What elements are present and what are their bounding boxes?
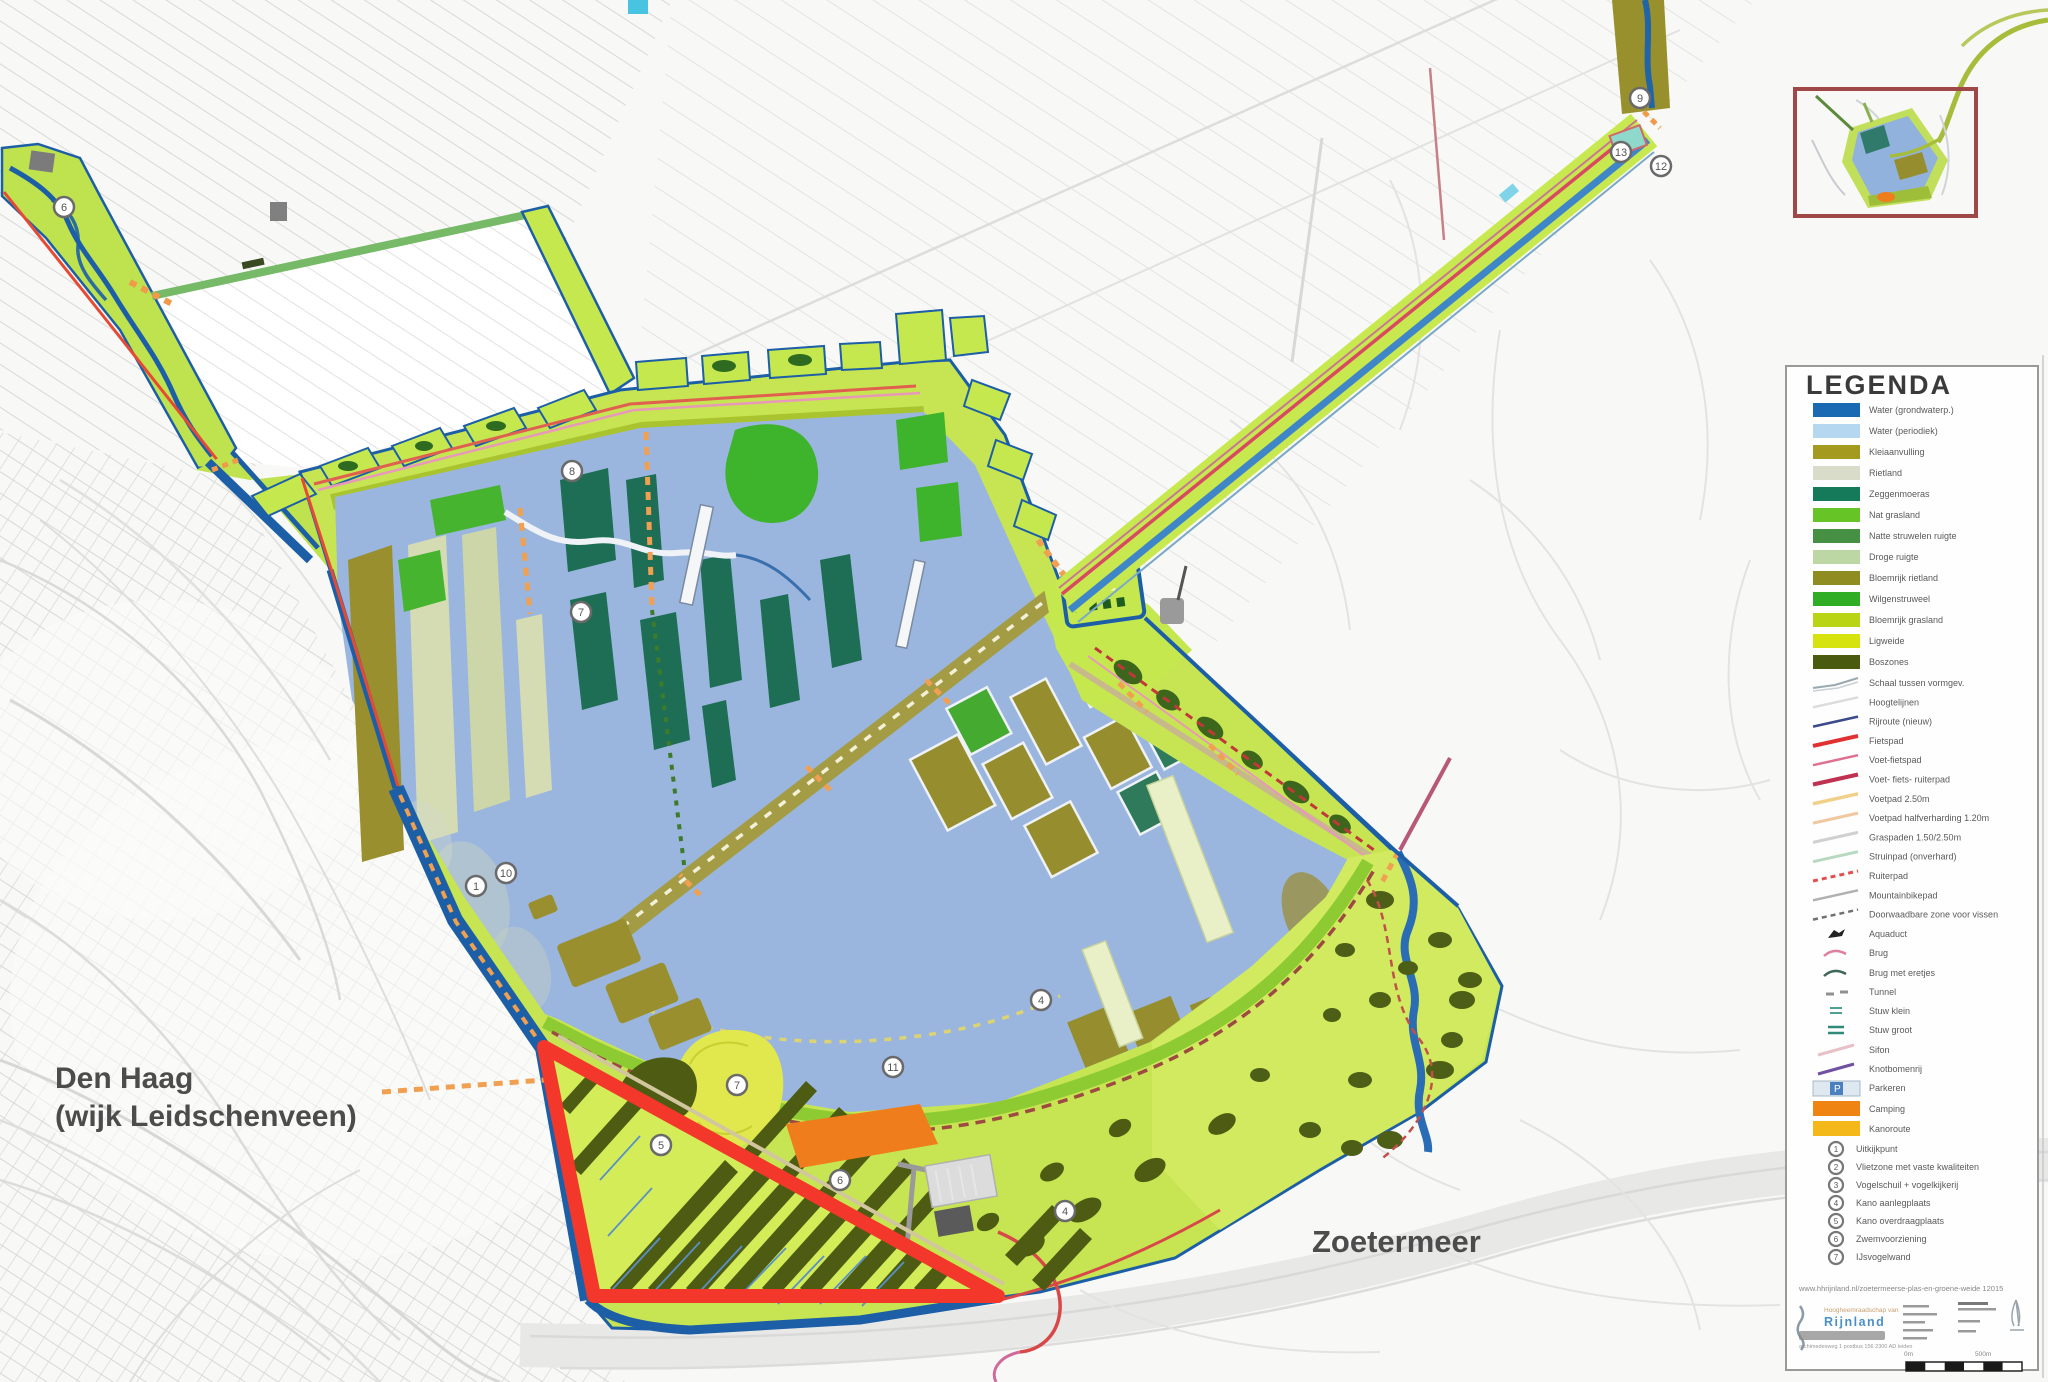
svg-text:5: 5 — [658, 1140, 664, 1152]
svg-text:Voetpad 2.50m: Voetpad 2.50m — [1869, 794, 1930, 804]
svg-text:11: 11 — [887, 1062, 898, 1074]
svg-text:Rijroute (nieuw): Rijroute (nieuw) — [1869, 717, 1932, 727]
svg-text:Parkeren: Parkeren — [1869, 1083, 1906, 1093]
svg-text:12: 12 — [1655, 161, 1667, 173]
svg-text:4: 4 — [1834, 1199, 1839, 1208]
svg-text:Sifon: Sifon — [1869, 1045, 1890, 1055]
svg-text:Zwemvoorziening: Zwemvoorziening — [1856, 1234, 1927, 1244]
svg-text:0m: 0m — [1904, 1351, 1913, 1358]
svg-text:Rietland: Rietland — [1869, 468, 1902, 478]
svg-text:Vogelschuil + vogelkijkerij: Vogelschuil + vogelkijkerij — [1856, 1180, 1958, 1190]
svg-text:Voetpad halfverharding 1.20m: Voetpad halfverharding 1.20m — [1869, 813, 1989, 823]
svg-text:Fietspad: Fietspad — [1869, 736, 1904, 746]
svg-text:Ligweide: Ligweide — [1869, 636, 1905, 646]
svg-text:Camping: Camping — [1869, 1104, 1905, 1114]
svg-text:Brug met eretjes: Brug met eretjes — [1869, 968, 1936, 978]
svg-text:Kanoroute: Kanoroute — [1869, 1124, 1911, 1134]
svg-text:Struinpad (onverhard): Struinpad (onverhard) — [1869, 852, 1957, 862]
svg-text:Kleiaanvulling: Kleiaanvulling — [1869, 447, 1925, 457]
svg-text:Kano aanlegplaats: Kano aanlegplaats — [1856, 1198, 1931, 1208]
svg-text:7: 7 — [578, 607, 584, 619]
svg-text:6: 6 — [837, 1175, 843, 1187]
svg-text:Doorwaadbare zone voor vissen: Doorwaadbare zone voor vissen — [1869, 910, 1998, 920]
svg-text:9: 9 — [1637, 93, 1643, 105]
svg-text:6: 6 — [1834, 1235, 1839, 1244]
svg-text:Zeggenmoeras: Zeggenmoeras — [1869, 489, 1930, 499]
svg-text:2: 2 — [1834, 1163, 1839, 1172]
svg-text:P: P — [1834, 1084, 1841, 1095]
svg-text:Knotbomenrij: Knotbomenrij — [1869, 1064, 1922, 1074]
svg-text:Wilgenstruweel: Wilgenstruweel — [1869, 594, 1930, 604]
svg-text:www.hhrijnland.nl/zoetermeerse: www.hhrijnland.nl/zoetermeerse-plas-en-g… — [1798, 1284, 2003, 1293]
svg-text:5: 5 — [1834, 1217, 1839, 1226]
svg-text:3: 3 — [1834, 1181, 1839, 1190]
svg-text:Kano overdraagplaats: Kano overdraagplaats — [1856, 1216, 1945, 1226]
svg-text:Vlietzone met vaste kwaliteite: Vlietzone met vaste kwaliteiten — [1856, 1162, 1979, 1172]
svg-text:10: 10 — [500, 868, 512, 880]
svg-text:Boszones: Boszones — [1869, 657, 1909, 667]
svg-text:1: 1 — [473, 881, 479, 893]
svg-text:archimedesweg 1 postbus 156 23: archimedesweg 1 postbus 156 2300 AD leid… — [1799, 1344, 1912, 1350]
svg-text:Ruiterpad: Ruiterpad — [1869, 871, 1908, 881]
svg-text:Den Haag: Den Haag — [55, 1062, 193, 1095]
svg-text:Voet- fiets- ruiterpad: Voet- fiets- ruiterpad — [1869, 775, 1950, 785]
svg-text:500m: 500m — [1975, 1351, 1991, 1358]
svg-text:Graspaden 1.50/2.50m: Graspaden 1.50/2.50m — [1869, 832, 1961, 842]
svg-text:Bloemrijk rietland: Bloemrijk rietland — [1869, 573, 1938, 583]
svg-text:Tunnel: Tunnel — [1869, 987, 1896, 997]
svg-text:Hoogheemraadschap van: Hoogheemraadschap van — [1824, 1307, 1899, 1314]
svg-text:Voet-fietspad: Voet-fietspad — [1869, 755, 1922, 765]
svg-text:Droge ruigte: Droge ruigte — [1869, 552, 1919, 562]
svg-text:Rijnland: Rijnland — [1824, 1315, 1885, 1329]
svg-text:4: 4 — [1062, 1206, 1068, 1218]
svg-text:Zoetermeer: Zoetermeer — [1312, 1224, 1481, 1259]
svg-text:LEGENDA: LEGENDA — [1806, 370, 1952, 400]
svg-text:Natte struwelen ruigte: Natte struwelen ruigte — [1869, 531, 1957, 541]
svg-text:13: 13 — [1615, 147, 1627, 159]
svg-text:(wijk Leidschenveen): (wijk Leidschenveen) — [55, 1100, 357, 1133]
svg-text:Hoogtelijnen: Hoogtelijnen — [1869, 697, 1919, 707]
svg-text:Stuw klein: Stuw klein — [1869, 1006, 1910, 1016]
svg-text:7: 7 — [734, 1080, 740, 1092]
svg-text:Water (periodiek): Water (periodiek) — [1869, 426, 1938, 436]
svg-text:Stuw groot: Stuw groot — [1869, 1025, 1913, 1035]
svg-text:7: 7 — [1834, 1253, 1839, 1262]
svg-text:Water (grondwaterp.): Water (grondwaterp.) — [1869, 405, 1954, 415]
svg-text:Bloemrijk grasland: Bloemrijk grasland — [1869, 615, 1943, 625]
svg-text:Brug: Brug — [1869, 948, 1888, 958]
svg-text:Nat grasland: Nat grasland — [1869, 510, 1920, 520]
svg-text:Uitkijkpunt: Uitkijkpunt — [1856, 1144, 1898, 1154]
svg-text:4: 4 — [1038, 995, 1044, 1007]
svg-text:IJsvogelwand: IJsvogelwand — [1856, 1252, 1911, 1262]
svg-text:6: 6 — [61, 202, 67, 214]
svg-text:8: 8 — [569, 466, 575, 478]
svg-text:Mountainbikepad: Mountainbikepad — [1869, 890, 1938, 900]
svg-text:1: 1 — [1834, 1145, 1839, 1154]
svg-text:Schaal tussen vormgev.: Schaal tussen vormgev. — [1869, 678, 1964, 688]
svg-text:Aquaduct: Aquaduct — [1869, 929, 1908, 939]
